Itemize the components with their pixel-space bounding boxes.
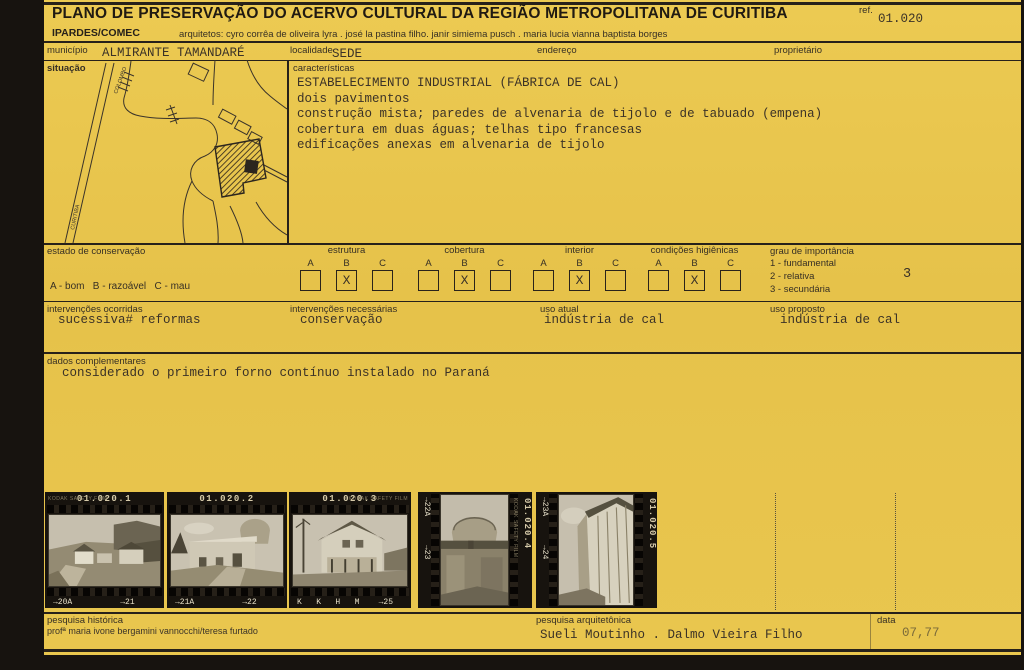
letter-a: A [418,258,439,269]
pesquisa-historica-label: pesquisa histórica [47,615,123,626]
caracteristica-line: ESTABELECIMENTO INDUSTRIAL (FÁBRICA DE C… [297,76,822,92]
group-label: interior [533,245,626,256]
conservation-group-higienicas: condições higiênicas ABC X [648,245,741,291]
localidade-label: localidade [290,45,333,56]
situation-map: COLOMBO CURITIBA [44,60,287,243]
sprocket-holes [291,505,409,513]
caracteristica-line: construção mista; paredes de alvenaria d… [297,107,822,123]
divider [44,41,1021,43]
localidade-value: SEDE [332,47,362,61]
checkbox-b-checked: X [454,270,475,291]
pesquisa-arquitetonica-value: Sueli Moutinho . Dalmo Vieira Filho [540,628,803,642]
letter-c: C [490,258,511,269]
situation-map-sketch: COLOMBO CURITIBA [44,60,287,243]
pesquisa-arquitetonica-label: pesquisa arquitetônica [536,615,631,626]
group-label: estrutura [300,245,393,256]
film-id: 01.020.2 [199,494,254,504]
letter-a: A [533,258,554,269]
ref-value: 01.020 [878,12,923,26]
checkbox-c [720,270,741,291]
film-brand: KODAK SAFETY FILM [348,496,408,502]
scanned-form-page: PLANO DE PRESERVAÇÃO DO ACERVO CULTURAL … [0,0,1024,670]
divider [44,301,1021,302]
film-frame-numbers: →20A →21 [45,596,164,611]
intervencoes-necessarias-value: conservação [300,313,383,327]
film-brand: KODAK SAFETY FILM [48,496,108,502]
letter-a: A [648,258,669,269]
letter-c: C [372,258,393,269]
film-strip-5: →23A →24 01.020.5 [536,492,657,608]
film-strip-3: 01.020.3KODAK SAFETY FILM K [289,492,411,608]
map-road-label-left: CURITIBA [70,204,81,231]
film-strip-1: KODAK SAFETY FILM01.020.1 → [45,492,164,608]
importancia-option: 3 - secundária [770,284,830,295]
checkbox-c [372,270,393,291]
divider [44,649,1021,652]
conservation-group-cobertura: cobertura ABC X [418,245,511,291]
importancia-value: 3 [903,267,911,282]
uso-proposto-value: indústria de cal [780,313,900,327]
conservacao-legend: A - bom B - razoável C - mau [50,281,190,292]
letter-c: C [605,258,626,269]
film-strip-4: →22A →23 01.020.4KODAK SAFETY FILM [418,492,532,608]
importancia-option: 2 - relativa [770,271,814,282]
photo-frame-2 [170,514,284,587]
sprocket-holes [47,588,162,596]
empty-photo-slot-divider [775,493,776,610]
photo-frame-3 [292,514,408,587]
film-id: 01.020.5 [647,498,657,608]
sprocket-holes [47,505,162,513]
conservation-group-estrutura: estrutura ABC X [300,245,393,291]
checkbox-a [300,270,321,291]
x-mark: X [455,273,474,288]
importancia-label: grau de importância [770,246,854,257]
checkbox-c [605,270,626,291]
pesquisa-historica-value: profª maria ivone bergamini vannocchi/te… [47,626,258,636]
form-title: PLANO DE PRESERVAÇÃO DO ACERVO CULTURAL … [52,5,788,23]
divider [44,612,1021,614]
letter-b: B [684,258,705,269]
letter-a: A [300,258,321,269]
municipio-value: ALMIRANTE TAMANDARÉ [102,46,245,60]
checkbox-a [648,270,669,291]
letter-b: B [454,258,475,269]
x-mark: X [570,273,589,288]
caracteristica-line: cobertura em duas águas; telhas tipo fra… [297,123,822,139]
proprietario-label: proprietário [774,45,822,56]
divider [870,613,871,649]
letter-b: B [336,258,357,269]
municipio-label: município [47,45,88,56]
conservacao-label: estado de conservação [47,246,145,257]
uso-atual-value: indústria de cal [544,313,664,327]
sprocket-holes [431,494,439,606]
divider [287,60,289,243]
checkbox-b-checked: X [336,270,357,291]
checkbox-a [533,270,554,291]
caracteristica-line: edificações anexas em alvenaria de tijol… [297,138,822,154]
intervencoes-ocorridas-value: sucessiva# reformas [58,313,201,327]
sprocket-holes [169,505,285,513]
film-strip-2: 01.020.2 →21A →22 [167,492,287,608]
data-label: data [877,615,896,626]
film-frame-numbers: →21A →22 [167,596,287,611]
sprocket-holes [169,588,285,596]
conservation-group-interior: interior ABC X [533,245,626,291]
importancia-option: 1 - fundamental [770,258,836,269]
endereco-label: endereço [537,45,577,56]
group-label: cobertura [418,245,511,256]
photo-frame-5 [558,494,634,606]
empty-photo-slot-divider [895,493,896,610]
photo-frame-4 [440,494,509,606]
caracteristicas-text: ESTABELECIMENTO INDUSTRIAL (FÁBRICA DE C… [297,76,822,154]
film-frame-numbers: →23A →24 [536,492,549,608]
dados-complementares-value: considerado o primeiro forno contínuo in… [62,366,490,380]
checkbox-c [490,270,511,291]
checkbox-b-checked: X [684,270,705,291]
sprocket-holes [635,494,643,606]
caracteristicas-label: características [293,63,354,74]
divider [44,352,1021,354]
form-card: PLANO DE PRESERVAÇÃO DO ACERVO CULTURAL … [44,0,1021,655]
x-mark: X [685,273,704,288]
film-id: 01.020.4 [522,498,532,608]
architects-line: arquitetos: cyro corrêa de oliveira lyra… [179,29,667,40]
photo-frame-1 [48,514,161,587]
org-name: IPARDES/COMEC [52,27,140,39]
group-label: condições higiênicas [648,245,741,256]
ref-label: ref. [859,5,873,16]
film-frame-numbers: K K H M →25 [289,596,411,611]
checkbox-a [418,270,439,291]
film-frame-numbers: →22A →23 [418,492,431,608]
x-mark: X [337,273,356,288]
checkbox-b-checked: X [569,270,590,291]
sprocket-holes [549,494,557,606]
film-brand: KODAK SAFETY FILM [512,498,518,608]
data-value: 07,77 [902,626,940,640]
letter-b: B [569,258,590,269]
caracteristica-line: dois pavimentos [297,92,822,108]
letter-c: C [720,258,741,269]
sprocket-holes [291,588,409,596]
